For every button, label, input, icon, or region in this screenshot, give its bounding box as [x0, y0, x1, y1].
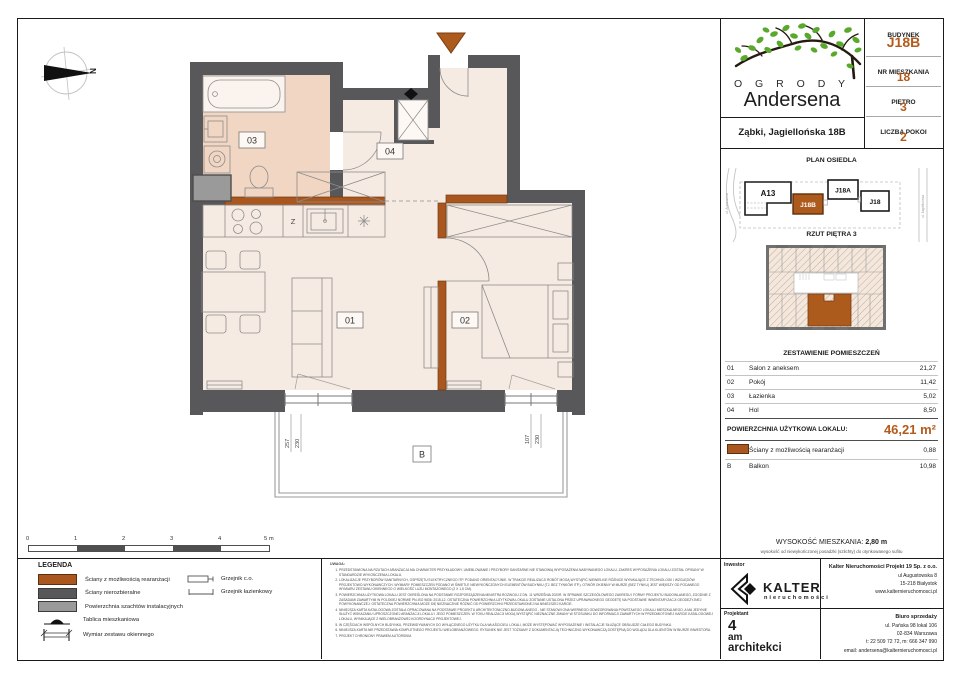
company-website: www.kalternieruchomosci.pl — [824, 588, 937, 596]
dim-label: 230 — [535, 435, 541, 444]
dim-label: 257 — [285, 439, 291, 448]
note-item: W CZĘŚCIACH WSPÓLNYCH BUDYNKU, PRZEWIDYW… — [339, 623, 716, 628]
note-item: PROJEKT CHRONIONY PRAWEM AUTORSKIM. — [339, 634, 716, 639]
row-id: 04 — [727, 407, 749, 414]
designer-line-3: architekci — [728, 643, 782, 655]
row-name: Hol — [749, 407, 896, 414]
solid-wall-swatch — [38, 588, 77, 599]
legend-label: Tablica mieszkaniowa — [83, 617, 139, 623]
shaft-swatch — [38, 601, 77, 612]
table-row: 04 Hol 8,50 — [725, 403, 938, 417]
street-label-right: ul. Jagiellońska — [921, 195, 925, 218]
room-label-03: 03 — [247, 136, 257, 146]
scale-tick-label: 2 — [122, 536, 125, 542]
notes-block: UWAGA: PRZEDSTAWIONA NA RZUTACH ARANŻACJ… — [330, 562, 716, 640]
company-street: ul Augustowska 8 — [824, 572, 937, 580]
legend-title: LEGENDA — [38, 562, 318, 569]
table-row: 02 Pokój 11,42 — [725, 375, 938, 389]
row-id: 02 — [727, 379, 749, 386]
row-name: Ściany z możliwością rearanżacji — [749, 447, 896, 454]
row-area: 11,42 — [896, 379, 936, 386]
row-id: B — [727, 463, 749, 470]
north-label: N — [89, 68, 98, 74]
building-j18-label: J18 — [869, 199, 880, 206]
row-area: 0,88 — [896, 447, 936, 454]
note-item: LOKALIZACJE PRZYBORÓW SANITARNYCH, OSPRZ… — [339, 578, 716, 592]
notes-title: UWAGA: — [330, 562, 716, 566]
board-icon — [38, 614, 75, 626]
info-mieszkanie-value: 18 — [866, 70, 941, 84]
sales-office-info: Biuro sprzedaży ul. Pańska 98 lokal 106 … — [824, 613, 937, 655]
rooms-table: 01 Salon z aneksem 21,27 02 Pokój 11,42 … — [725, 361, 938, 473]
row-area: 21,27 — [896, 365, 936, 372]
row-id: 01 — [727, 365, 749, 372]
dim-label: 107 — [525, 435, 531, 444]
total-area-value: 46,21 m² — [884, 422, 936, 437]
row-name: Pokój — [749, 379, 896, 386]
row-area: 5,02 — [896, 393, 936, 400]
radiator-bath-icon — [187, 587, 215, 597]
row-area: 10,98 — [896, 463, 936, 470]
legend-item: Tablica mieszkaniowa — [38, 614, 318, 628]
scale-bar-track — [28, 545, 270, 552]
total-area-row: POWIERZCHNIA UŻYTKOWA LOKALU: 46,21 m² — [725, 418, 938, 441]
sales-email: email: andersena@kalternieruchomosci.pl — [824, 647, 937, 655]
company-info: Kalter Nieruchomości Projekt 19 Sp. z o.… — [824, 563, 937, 597]
room-label-02: 02 — [460, 316, 470, 326]
room-label-04: 04 — [385, 147, 395, 157]
row-name: Salon z aneksem — [749, 365, 896, 372]
sales-city: 02-834 Warszawa — [824, 630, 937, 638]
leaves — [734, 22, 862, 69]
reconfig-wall-swatch — [38, 574, 77, 585]
scale-bar: 0 1 2 3 4 5 m — [28, 536, 278, 556]
building-j18a-label: J18A — [835, 188, 851, 195]
scale-tick-label: 5 m — [264, 536, 274, 542]
note-item: POWIERZCHNIA UŻYTKOWA LOKALU JEST OKREŚL… — [339, 593, 716, 607]
note-item: NINIEJSZA KARTA NIE PRZEDSTAWIA KOMPLETN… — [339, 628, 716, 633]
hatched-shaft — [398, 100, 428, 140]
info-sep-1 — [866, 56, 941, 57]
building-a13-shape — [745, 182, 791, 215]
legend-item: Wymiar zestawu okiennego — [38, 627, 318, 643]
legend-right-column: Grzejnik c.o. Grzejnik łazienkowy — [187, 572, 317, 599]
scale-tick-label: 1 — [74, 536, 77, 542]
address-bottom-line — [720, 148, 943, 149]
company-name: Kalter Nieruchomości Projekt 19 Sp. z o.… — [824, 563, 937, 572]
info-pietro-value: 3 — [866, 100, 941, 114]
company-city: 15-218 Białystok — [824, 580, 937, 588]
info-sep-2 — [866, 86, 941, 87]
floor-thumb-title: RZUT PIĘTRA 3 — [720, 231, 943, 238]
dim-label: 230 — [295, 439, 301, 448]
kitchen-z-label: Z — [291, 217, 296, 226]
table-row: 01 Salon z aneksem 21,27 — [725, 361, 938, 375]
investor-brand-name: KALTER — [763, 580, 821, 595]
height-value: 2,80 m — [865, 539, 887, 546]
footer-row-divider — [720, 608, 943, 609]
site-plan-title: PLAN OSIEDLA — [720, 157, 943, 164]
scale-tick-label: 4 — [218, 536, 221, 542]
building-a13-label: A13 — [761, 189, 776, 198]
legend-item: Powierzchnia szachtów instalacyjnych — [38, 600, 318, 614]
note-item: NINIEJSZA KARTA KATALOGOWA ZOSTAŁA OPRAC… — [339, 608, 716, 622]
north-arrow-icon: N — [36, 40, 100, 104]
catalog-sheet: O G R O D Y Andersena Ząbki, Jagiellońsk… — [0, 0, 960, 678]
legend-label: Wymiar zestawu okiennego — [83, 632, 154, 638]
table-row-balcony: B Balkon 10,98 — [725, 459, 938, 473]
floor-plan: 257 230 107 230 03 04 01 02 B Z — [170, 20, 640, 510]
investor-label: Inwestor — [724, 562, 745, 568]
floor-thumbnail — [766, 245, 886, 330]
info-pokoje-value: 2 — [866, 130, 941, 144]
thumb-core — [794, 273, 858, 293]
entrance-marker-triangle — [437, 33, 465, 53]
legend-label: Grzejnik łazienkowy — [221, 589, 272, 595]
apartment-height: WYSOKOŚĆ MIESZKANIA: 2,80 m — [720, 539, 943, 546]
legend-label: Powierzchnia szachtów instalacyjnych — [85, 604, 183, 610]
legend-label: Ściany z możliwością rearanżacji — [85, 577, 170, 583]
scale-tick-label: 3 — [170, 536, 173, 542]
investor-brand-sub: nieruchomości — [764, 595, 830, 601]
logo-bottom-line — [720, 117, 864, 118]
table-row-walls: Ściany z możliwością rearanżacji 0,88 — [725, 441, 938, 459]
reconfig-wall-swatch — [727, 444, 749, 454]
legend-label: Ściany nierozbieralne — [85, 590, 140, 596]
sales-street: ul. Pańska 98 lokal 106 — [824, 622, 937, 630]
sidebar-divider — [720, 18, 721, 659]
street-label-left: ul. Andersena — [725, 193, 729, 214]
info-budynek-value: J18B — [866, 34, 941, 50]
note-item: PRZEDSTAWIONA NA RZUTACH ARANŻACJA MA CH… — [339, 568, 716, 577]
header-divider — [864, 18, 865, 148]
info-sep-3 — [866, 116, 941, 117]
height-subtitle: wysokość od niewykończonej posadzki (szl… — [720, 549, 943, 554]
row-name: Balkon — [749, 463, 896, 470]
rooms-table-title: ZESTAWIENIE POMIESZCZEŃ — [720, 350, 943, 357]
table-row: 03 Łazienka 5,02 — [725, 389, 938, 403]
footer-top-line — [17, 558, 943, 559]
row-id: 03 — [727, 393, 749, 400]
row-name: Łazienka — [749, 393, 896, 400]
kalter-logo-icon — [727, 573, 761, 605]
room-label-01: 01 — [345, 316, 355, 326]
logo-line-2: Andersena — [722, 89, 862, 112]
height-label: WYSOKOŚĆ MIESZKANIA: — [776, 539, 864, 546]
legend-notes-divider — [321, 558, 322, 659]
designer-logo: 4 am architekci — [728, 618, 782, 655]
designer-line-1: 4 — [728, 618, 782, 633]
sales-phones: t: 22 509 72 72, m: 666 347 990 — [824, 638, 937, 646]
sales-office-title: Biuro sprzedaży — [824, 613, 937, 622]
total-area-label: POWIERZCHNIA UŻYTKOWA LOKALU: — [727, 426, 884, 433]
window-dim-icon — [38, 627, 75, 643]
building-j18b-label: J18B — [800, 202, 816, 209]
legend-item: Grzejnik c.o. — [187, 572, 317, 586]
scale-tick-label: 0 — [26, 536, 29, 542]
bathtub — [203, 76, 285, 112]
project-address: Ząbki, Jagiellońska 18B — [720, 127, 864, 138]
installation-shaft — [193, 175, 231, 201]
room-label-balcony: B — [419, 450, 425, 460]
notes-list: PRZEDSTAWIONA NA RZUTACH ARANŻACJA MA CH… — [330, 568, 716, 639]
legend-item: Grzejnik łazienkowy — [187, 586, 317, 600]
tree-branch-graphic — [722, 20, 862, 80]
radiator-co-icon — [187, 574, 215, 584]
row-area: 8,50 — [896, 407, 936, 414]
legend-label: Grzejnik c.o. — [221, 576, 253, 582]
